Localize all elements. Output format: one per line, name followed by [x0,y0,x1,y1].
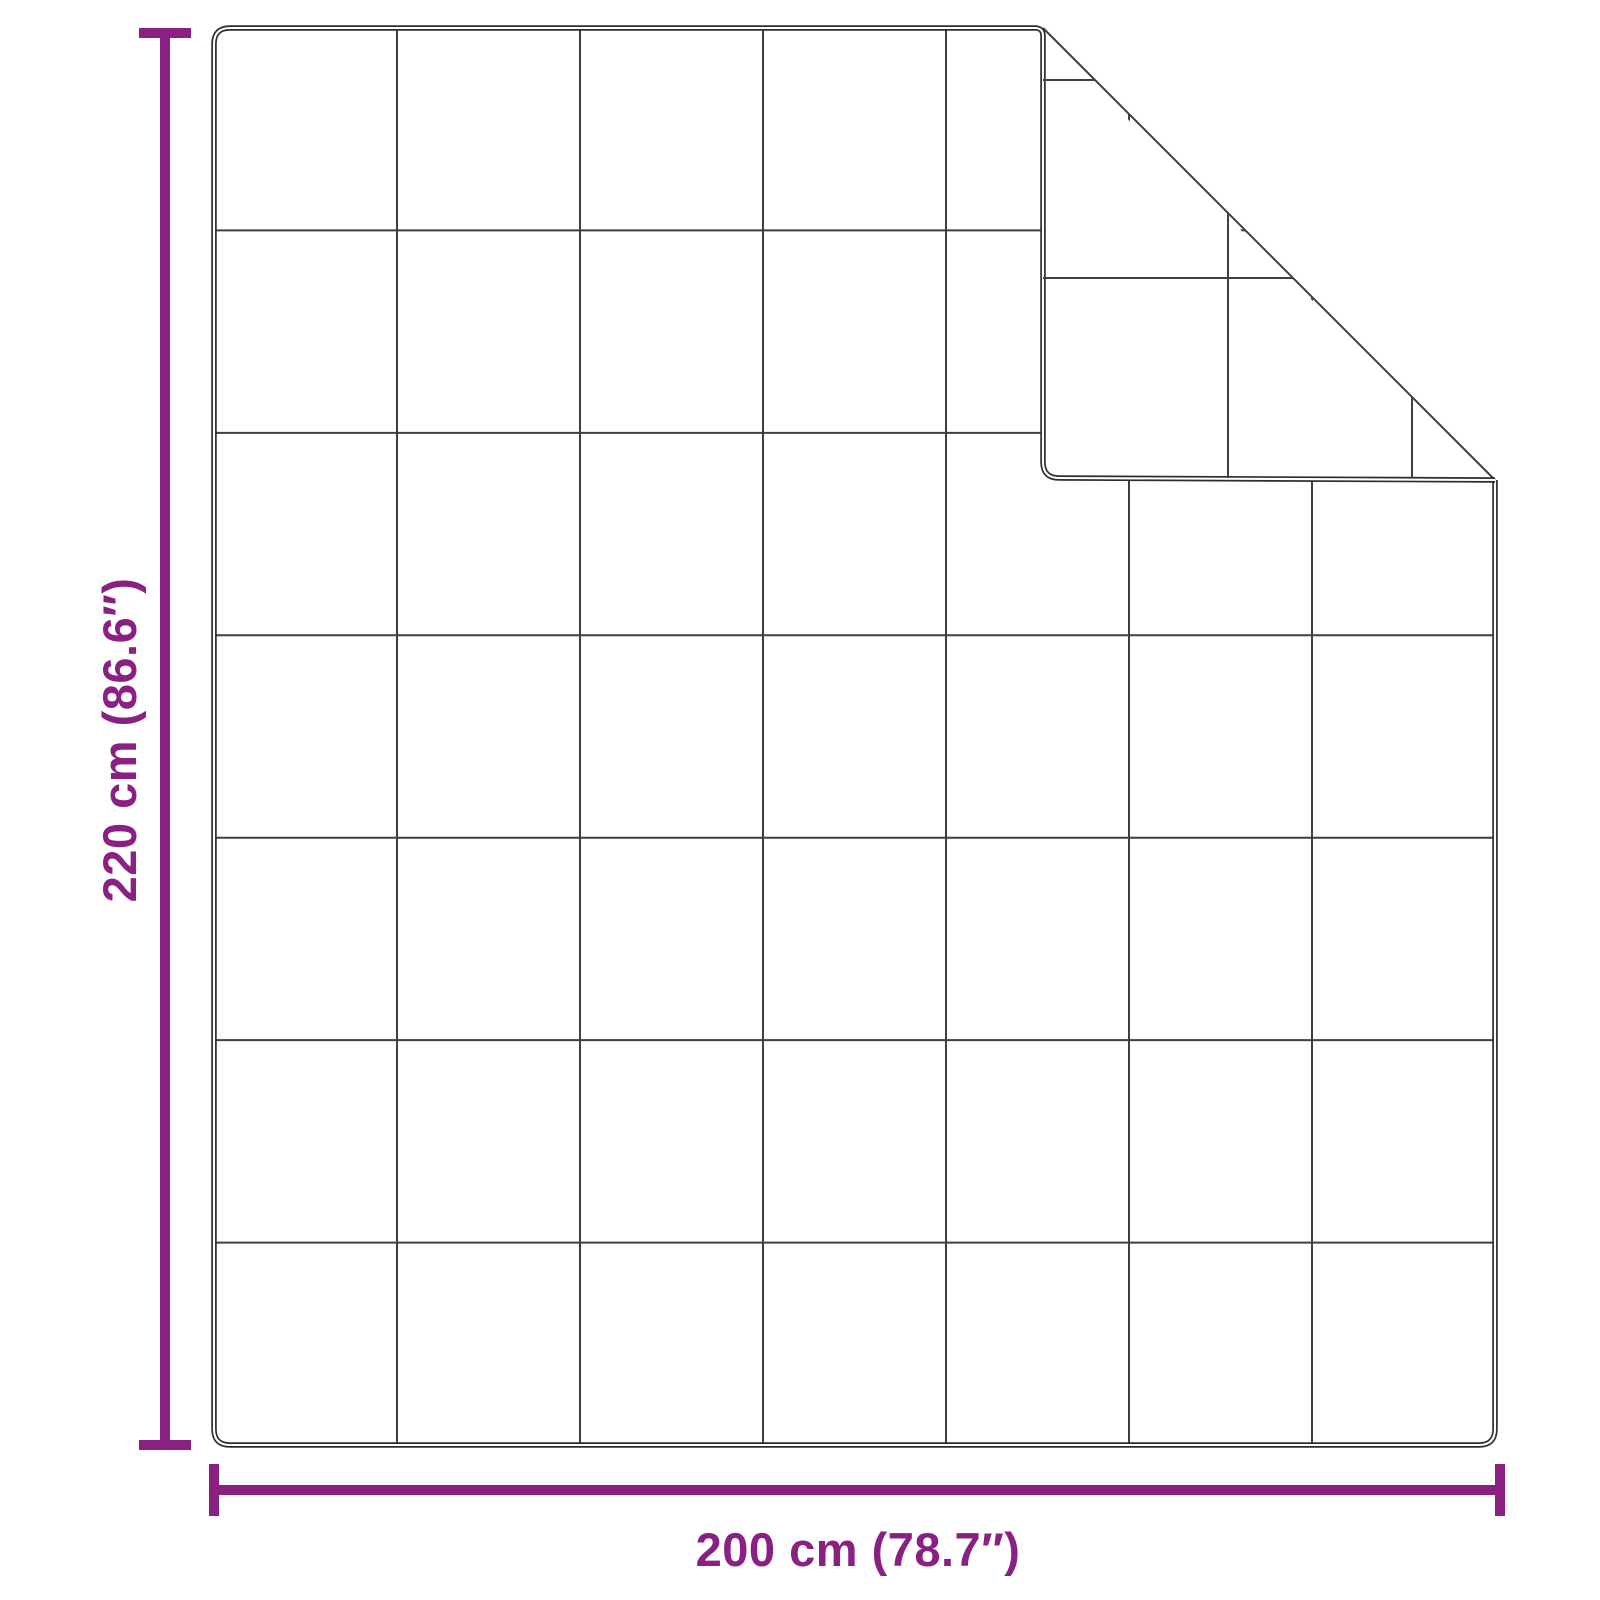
height-dimension-label: 220 cm (86.6″) [93,578,146,903]
width-dimension-label: 200 cm (78.7″) [696,1523,1021,1576]
blanket-body [214,28,1495,1445]
blanket-dimension-diagram: 220 cm (86.6″) 200 cm (78.7″) [0,0,1600,1600]
diagram-canvas: 220 cm (86.6″) 200 cm (78.7″) [0,0,1600,1600]
